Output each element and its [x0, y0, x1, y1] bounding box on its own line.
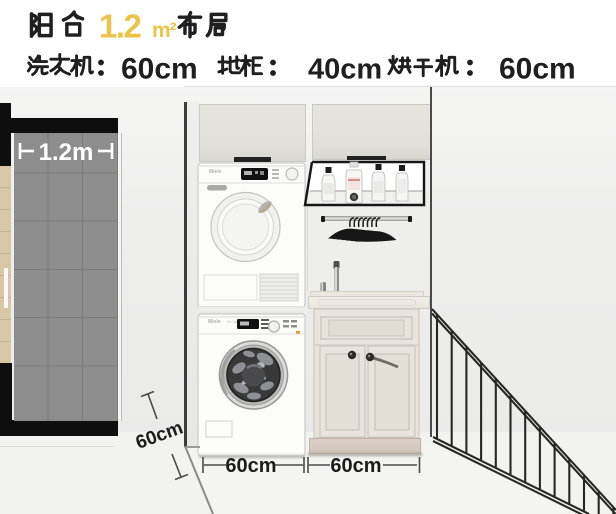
svg-text:60cm: 60cm — [225, 455, 276, 477]
svg-text:60cm: 60cm — [121, 53, 198, 86]
svg-text:60cm: 60cm — [133, 417, 186, 453]
svg-text:60cm: 60cm — [330, 455, 381, 477]
svg-text:40cm: 40cm — [308, 54, 382, 86]
svg-text:Miele: Miele — [208, 319, 221, 325]
svg-text:1.2m: 1.2m — [39, 139, 94, 166]
svg-text:Miele: Miele — [209, 169, 222, 175]
svg-text:60cm: 60cm — [499, 53, 576, 86]
